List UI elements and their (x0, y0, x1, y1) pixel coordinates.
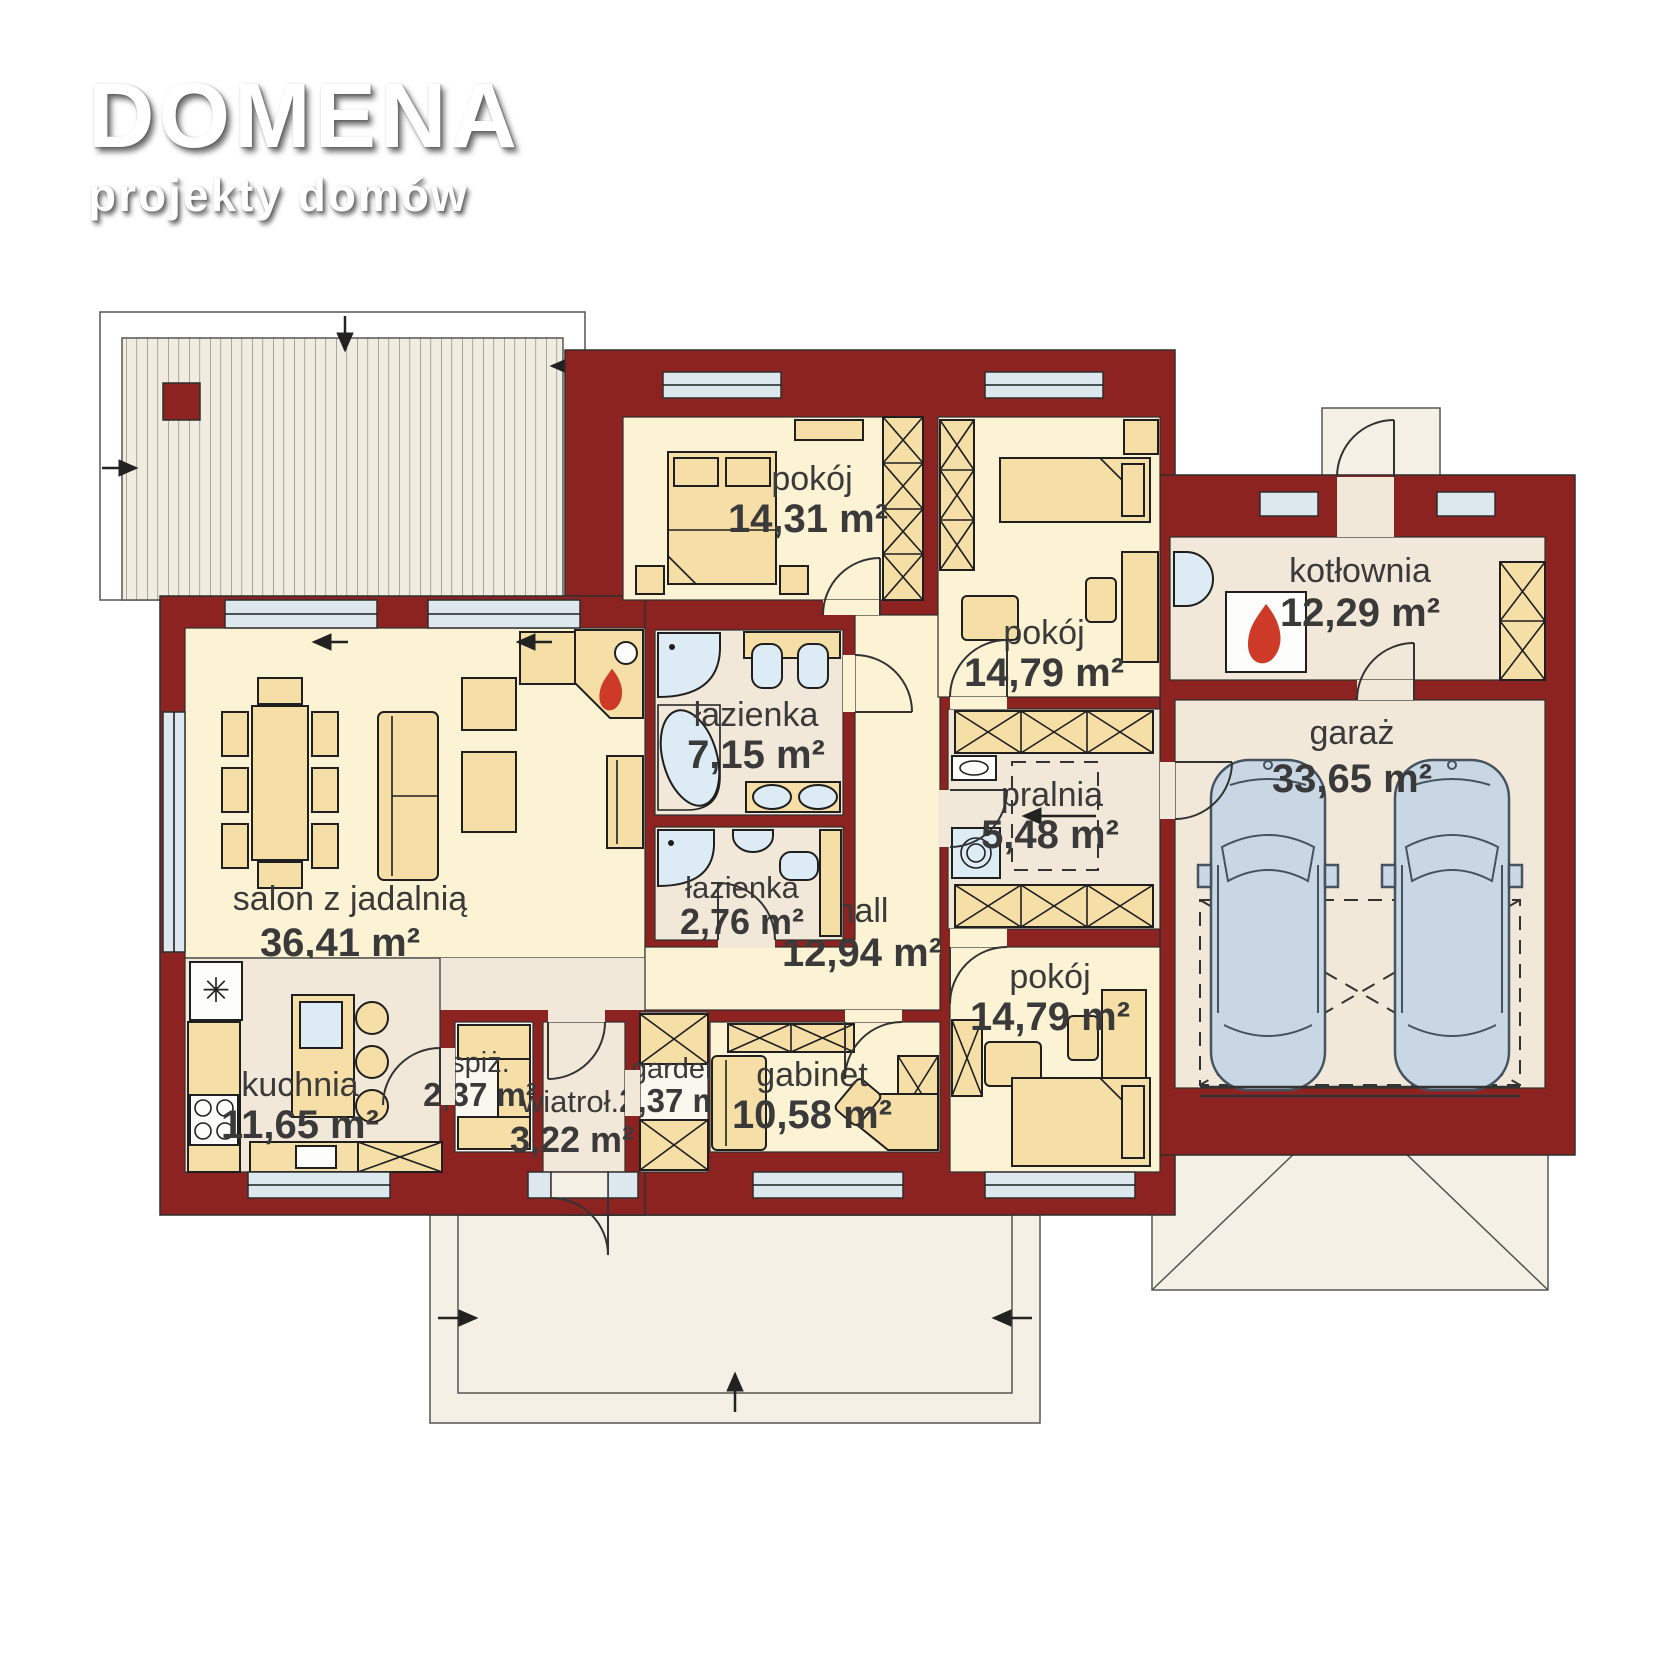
room-area: 11,65 m² (221, 1103, 379, 1147)
room-lazienka2: łazienka 2,76 m² (655, 827, 843, 942)
room-label: garder. (631, 1053, 721, 1085)
terrace-decking (122, 338, 563, 600)
floor-plan: salon z jadalnią 36,41 m² ✳ kuchnia 11,6… (0, 0, 1680, 1680)
room-label: pokój (1009, 958, 1090, 996)
tv-cabinet (607, 756, 643, 848)
room-area: 12,29 m² (1280, 591, 1440, 635)
room-label: gabinet (756, 1056, 868, 1094)
sidelight (608, 1172, 638, 1198)
desk (1122, 552, 1158, 662)
nightstand (636, 566, 664, 594)
entrance-porch (430, 1215, 1040, 1423)
room-kuchnia: ✳ kuchnia 11,65 m² (185, 958, 442, 1172)
room-label: pralnia (1001, 776, 1103, 814)
terrace-column (163, 383, 200, 420)
room-label: pokój (1003, 614, 1084, 652)
room-salon: salon z jadalnią 36,41 m² (185, 628, 645, 1010)
room-area: 33,65 m² (1272, 757, 1432, 801)
coffee-table (462, 752, 516, 832)
nightstand (780, 566, 808, 594)
car-icon (1198, 760, 1338, 1090)
toilet (752, 644, 782, 688)
room-label: pokój (771, 460, 852, 498)
window (1437, 492, 1495, 516)
washbasin (753, 785, 791, 809)
room-area: 5,48 m² (981, 813, 1119, 857)
room-area: 3,22 m² (510, 1119, 634, 1160)
room-label: spiż. (450, 1047, 510, 1079)
room-pokoj3: pokój 14,79 m² (950, 947, 1160, 1172)
room-label: łazienka (694, 696, 819, 734)
page: { "brand": { "name": "DOMENA", "tagline"… (0, 0, 1680, 1680)
front-door (551, 1172, 608, 1198)
room-pokoj2: pokój 14,79 m² (938, 417, 1160, 697)
room-area: 2,76 m² (680, 901, 804, 942)
room-label: kotłownia (1289, 552, 1431, 590)
room-area: 10,58 m² (732, 1093, 892, 1137)
room-label: kuchnia (241, 1066, 358, 1104)
kitchen-sink (296, 1146, 336, 1168)
island-sink (300, 1002, 342, 1048)
boiler-room-entry-recess (1322, 408, 1440, 477)
desk-chair (1086, 578, 1116, 622)
dining-table (252, 706, 308, 860)
room-label: salon z jadalnią (233, 880, 467, 918)
washbasin (799, 785, 837, 809)
shelf (795, 420, 863, 440)
room-lazienka: łazienka 7,15 m² (651, 630, 843, 815)
room-area: 14,79 m² (964, 651, 1124, 695)
room-pralnia: pralnia 5,48 m² (948, 709, 1160, 929)
room-gabinet: gabinet 10,58 m² (710, 1010, 940, 1152)
room-label: garaż (1309, 714, 1394, 752)
room-area: 14,79 m² (970, 995, 1130, 1039)
fridge-icon: ✳ (202, 972, 231, 1010)
room-area: 7,15 m² (687, 733, 825, 777)
armchair (520, 632, 576, 684)
bidet (798, 644, 828, 688)
room-label: wiatroł. (520, 1084, 619, 1119)
sidelight (528, 1172, 551, 1198)
laundry-sink (952, 756, 996, 780)
terrace (100, 312, 586, 600)
room-area: 14,31 m² (728, 497, 888, 541)
room-kotlownia: kotłownia 12,29 m² (1170, 537, 1545, 680)
nightstand (1124, 420, 1158, 454)
room-pokoj1: pokój 14,31 m² (623, 417, 923, 600)
car-icon (1382, 760, 1522, 1090)
room-garaz: garaż 33,65 m² (1175, 700, 1545, 1096)
window (1260, 492, 1318, 516)
armchair (462, 678, 516, 730)
